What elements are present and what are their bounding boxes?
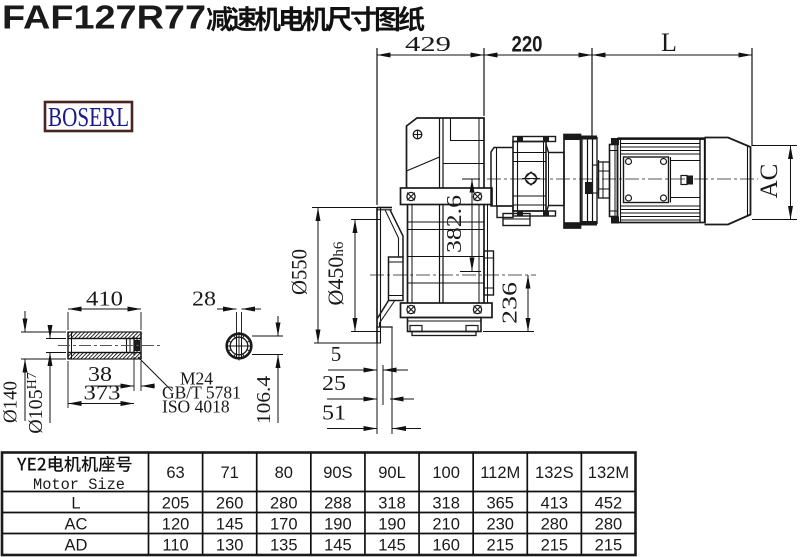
svg-text:135: 135: [270, 537, 298, 555]
svg-text:51: 51: [322, 401, 346, 425]
svg-text:L: L: [661, 28, 677, 57]
svg-text:112M: 112M: [480, 464, 520, 482]
svg-text:170: 170: [270, 516, 298, 534]
svg-text:AD: AD: [65, 537, 88, 555]
svg-text:25: 25: [322, 371, 346, 395]
svg-text:28: 28: [192, 287, 216, 311]
svg-text:Ø140: Ø140: [0, 381, 22, 423]
svg-text:80: 80: [275, 464, 293, 482]
svg-text:FAF127R77: FAF127R77: [2, 0, 206, 36]
svg-text:132S: 132S: [535, 464, 574, 482]
svg-text:145: 145: [378, 537, 406, 555]
svg-text:429: 429: [405, 32, 451, 56]
svg-text:280: 280: [270, 495, 298, 513]
svg-text:120: 120: [162, 516, 190, 534]
svg-text:L: L: [71, 495, 80, 513]
svg-text:205: 205: [162, 495, 190, 513]
svg-text:318: 318: [378, 495, 406, 513]
svg-text:236: 236: [498, 282, 522, 324]
svg-text:318: 318: [432, 495, 460, 513]
svg-text:AC: AC: [65, 516, 88, 534]
svg-text:BOSERL: BOSERL: [48, 102, 129, 132]
svg-text:190: 190: [378, 516, 406, 534]
svg-text:373: 373: [84, 381, 121, 405]
svg-text:382.6: 382.6: [442, 195, 466, 253]
svg-text:106.4: 106.4: [253, 376, 275, 424]
svg-text:220: 220: [512, 32, 543, 57]
svg-text:410: 410: [86, 287, 123, 311]
svg-text:132M: 132M: [588, 464, 629, 482]
svg-text:280: 280: [595, 516, 623, 534]
svg-text:5: 5: [331, 342, 342, 366]
svg-text:413: 413: [541, 495, 569, 513]
svg-text:ISO 4018: ISO 4018: [162, 397, 230, 417]
svg-text:Motor Size: Motor Size: [33, 476, 125, 494]
svg-text:AC: AC: [756, 164, 783, 199]
svg-text:100: 100: [432, 464, 460, 482]
svg-text:230: 230: [486, 516, 514, 534]
svg-text:90S: 90S: [323, 464, 352, 482]
svg-text:110: 110: [162, 537, 188, 555]
svg-text:288: 288: [324, 495, 352, 513]
svg-text:210: 210: [432, 516, 460, 534]
svg-text:Ø550: Ø550: [287, 249, 312, 295]
svg-text:71: 71: [220, 464, 238, 482]
svg-text:215: 215: [595, 537, 623, 555]
svg-text:190: 190: [324, 516, 352, 534]
svg-text:452: 452: [595, 495, 623, 513]
svg-text:260: 260: [216, 495, 244, 513]
svg-text:145: 145: [216, 516, 244, 534]
svg-text:160: 160: [432, 537, 460, 555]
svg-text:63: 63: [166, 464, 184, 482]
svg-text:365: 365: [486, 495, 514, 513]
svg-text:280: 280: [541, 516, 569, 534]
svg-text:215: 215: [486, 537, 514, 555]
svg-text:130: 130: [216, 537, 244, 555]
svg-text:145: 145: [324, 537, 352, 555]
svg-text:215: 215: [541, 537, 569, 555]
svg-text:90L: 90L: [378, 464, 406, 482]
